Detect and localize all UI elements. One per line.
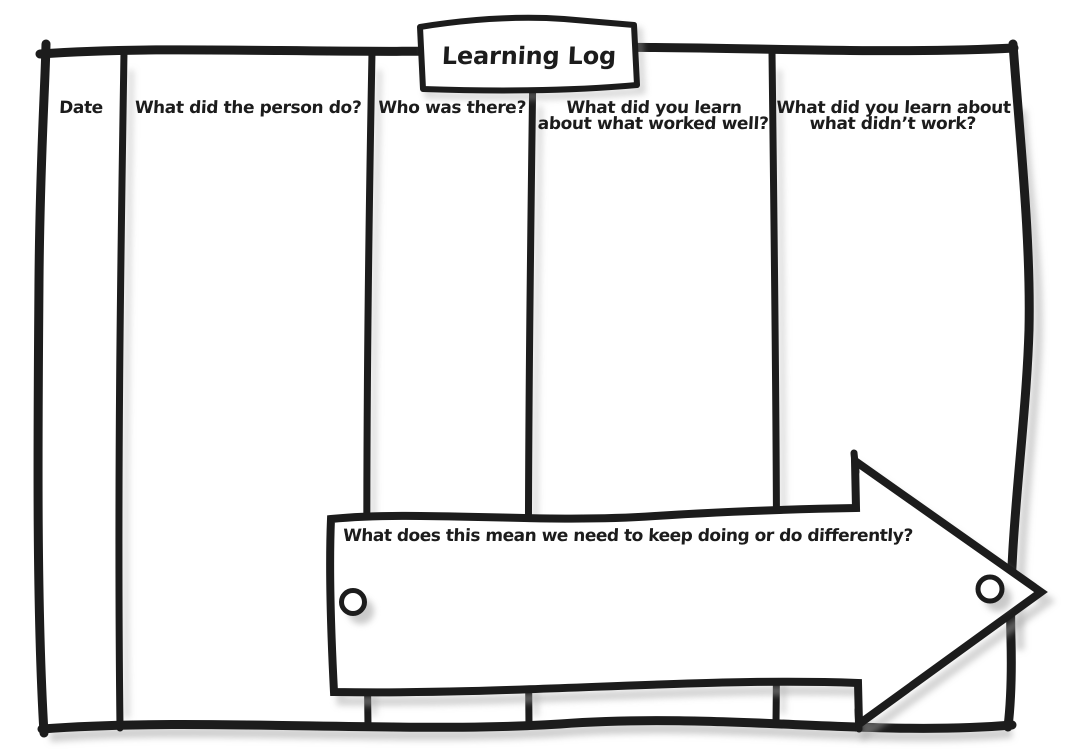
right-grommet-icon [978,577,1002,601]
worksheet-title: Learning Log [428,42,629,70]
arrow-question-label: What does this mean we need to keep doin… [342,525,899,547]
column-header-what-did-person-do: What did the person do? [127,100,370,116]
column-header-didnt-work: What did you learn about what didn’t wor… [773,100,1013,132]
column-header-date: Date [41,100,122,116]
header-line: about what worked well? [535,116,771,132]
column-header-worked-well: What did you learn about what worked wel… [535,100,772,132]
header-line: What did the person do? [127,100,370,116]
divider-shadow-1 [126,70,131,718]
header-line: Who was there? [373,100,532,116]
left-border [38,44,46,733]
header-line: Date [41,100,122,116]
learning-log-worksheet: Learning Log Date What did the person do… [0,0,1065,753]
left-grommet-icon [342,591,365,614]
header-line: what didn’t work? [773,116,1012,132]
column-header-who-was-there: Who was there? [373,100,532,116]
overshoot-bottom-notch [858,710,859,729]
overshoot-top-notch [854,453,856,472]
